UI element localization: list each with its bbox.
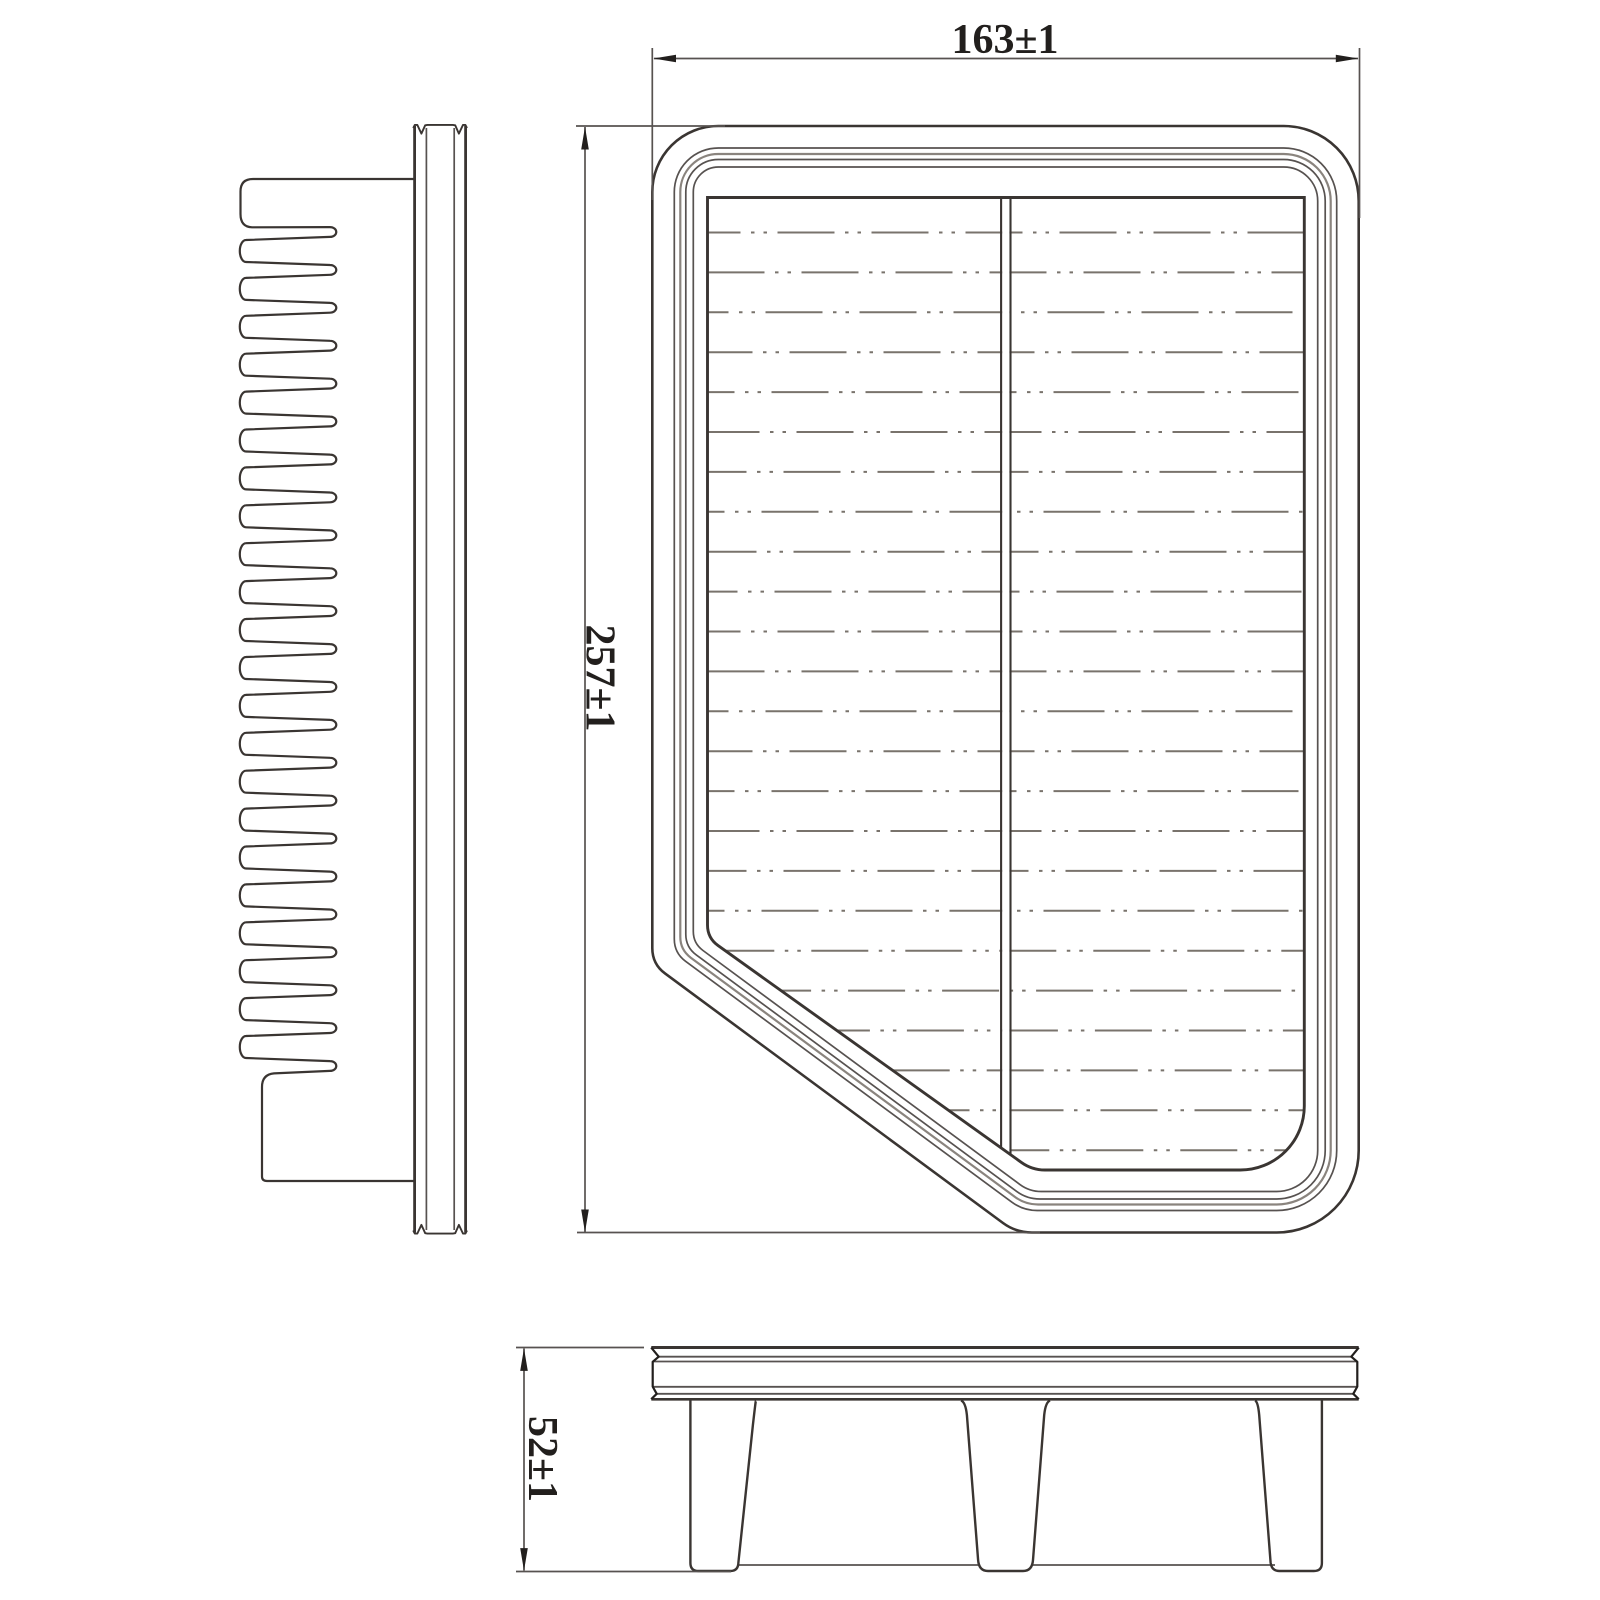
svg-text:257±1: 257±1 bbox=[577, 624, 623, 731]
svg-text:163±1: 163±1 bbox=[951, 17, 1058, 63]
svg-text:52±1: 52±1 bbox=[519, 1416, 565, 1502]
